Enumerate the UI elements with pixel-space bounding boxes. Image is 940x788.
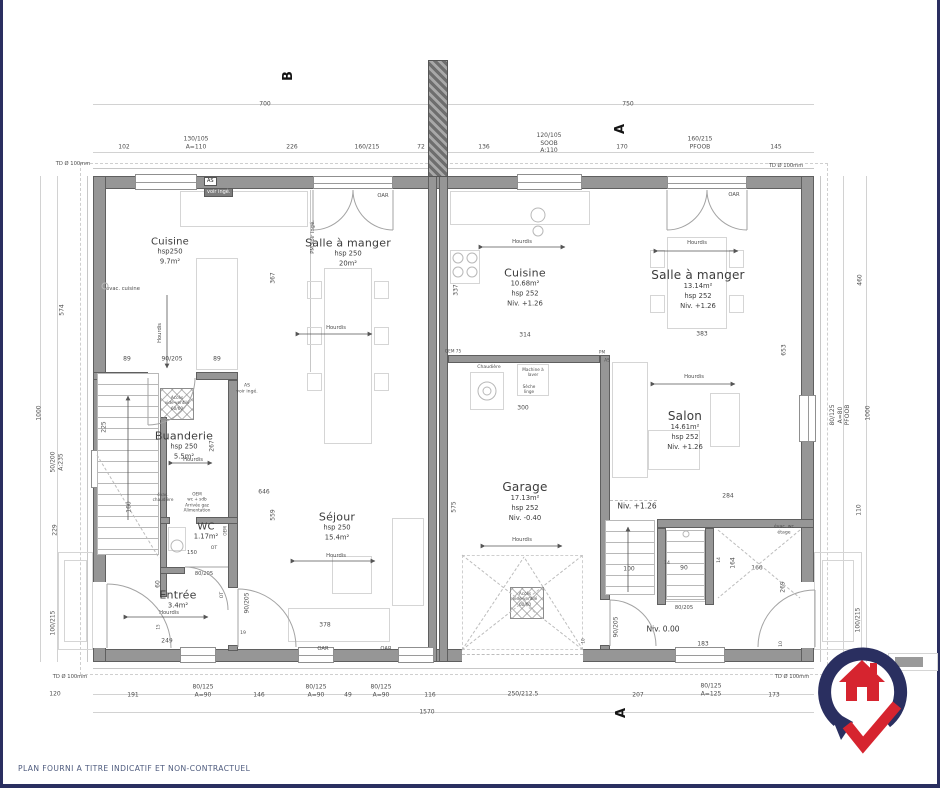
- dim-chain-line: [93, 152, 814, 153]
- dim-label: 750: [622, 100, 633, 108]
- chair: [307, 327, 322, 345]
- house-door-icon: [857, 687, 867, 701]
- room-detail: hsp 252: [667, 433, 703, 443]
- wall-wc-bottom: [160, 567, 185, 574]
- dim-label: 225: [100, 421, 108, 432]
- dim-label: 60: [154, 580, 162, 588]
- appliance-label: Sèche linge: [523, 384, 536, 395]
- dim-label: 80/205: [195, 571, 213, 578]
- room-label-entree: Entrée 3.4m²: [159, 589, 196, 612]
- dim-label: 10: [580, 638, 585, 643]
- dim-label: 100: [623, 565, 634, 573]
- dim-label: 173: [768, 691, 779, 699]
- room-detail: hsp 250: [305, 250, 391, 260]
- access-note: Accès vide-ventilé 60/60: [513, 591, 538, 607]
- dim-label: 183: [697, 640, 708, 648]
- dim-label: 559: [269, 509, 277, 520]
- dim-label: 269: [779, 581, 787, 592]
- dim-label: 10: [779, 641, 785, 647]
- checkmark-icon: [847, 705, 897, 745]
- hourdis-label: Hourdis: [157, 323, 164, 343]
- window: [799, 395, 816, 442]
- dim-label: 136: [478, 143, 489, 151]
- page-border-left: [0, 0, 3, 788]
- hourdis-label: Hourdis: [512, 239, 532, 246]
- pm-note: PM: [599, 349, 605, 354]
- dim-label: 575: [450, 501, 458, 512]
- hourdis-label: Hourdis: [512, 537, 532, 544]
- as-note: AS: [604, 357, 610, 362]
- evac-note: évac. cuisine: [106, 286, 140, 293]
- dim-label: 130/105 A=110: [184, 136, 209, 151]
- porch-right-inner: [822, 560, 854, 642]
- hourdis-label: Hourdis: [326, 325, 346, 332]
- dim-label: 653: [780, 344, 788, 355]
- level-label: Niv. 0.00: [646, 624, 679, 633]
- dim-label: 160/215 PFOOB: [688, 136, 713, 151]
- room-label-cuisine-right: Cuisine 10.68m² hsp 252 Niv. +1.26: [504, 267, 546, 310]
- room-detail: 13.14m²: [651, 282, 744, 292]
- dim-label: 226: [286, 143, 297, 151]
- room-label-cuisine-left: Cuisine hsp250 9.7m²: [151, 237, 189, 268]
- room-detail: 9.7m²: [151, 258, 189, 268]
- dim-chain-line: [93, 104, 814, 105]
- staircase-left: [97, 373, 159, 555]
- sofa: [392, 518, 424, 606]
- dim-label: 14: [717, 557, 723, 563]
- room-detail: Niv. +1.26: [504, 299, 546, 309]
- dim-label: 145: [770, 143, 781, 151]
- room-name: Salon: [667, 409, 703, 423]
- dim-label: 1000: [35, 405, 43, 420]
- dim-chain-line: [93, 712, 814, 713]
- hourdis-label: Hourdis: [684, 374, 704, 381]
- dim-label: 383: [696, 330, 707, 338]
- dim-label: 116: [424, 691, 435, 699]
- dim-label: 19: [240, 631, 246, 637]
- dim-label: 249: [161, 637, 172, 645]
- dim-label: 170: [616, 143, 627, 151]
- sofa: [612, 362, 648, 478]
- dim-label: 1570: [419, 708, 434, 716]
- party-wall-right: [439, 176, 448, 662]
- room-detail: hsp 252: [502, 504, 547, 514]
- kitchen-island: [196, 258, 238, 370]
- room-label-salle-right: Salle à manger 13.14m² hsp 252 Niv. +1.2…: [651, 268, 744, 312]
- window: [398, 647, 434, 663]
- exterior-element-fill: [895, 657, 923, 667]
- room-detail: hsp 250: [155, 443, 213, 453]
- door-opening: [93, 582, 106, 648]
- wall-buanderie-right: [228, 380, 238, 588]
- floor-plan-page: AS voir ingé. 700 750 B A A 102 130/105 …: [0, 0, 940, 788]
- house-body-icon: [846, 679, 879, 701]
- td-label: TD Ø 100mm: [775, 674, 810, 681]
- coffee-table: [332, 556, 372, 594]
- room-label-sejour: Séjour hsp 250 15.4m²: [319, 511, 355, 544]
- room-name: Cuisine: [504, 267, 546, 280]
- room-detail: hsp 250: [319, 524, 355, 534]
- appliance-label: Chaudière: [477, 365, 500, 371]
- room-name: Buanderie: [155, 430, 213, 443]
- as-note-detail: voir ingé.: [204, 188, 233, 197]
- evac-note: évac. chaudière: [153, 492, 174, 503]
- dim-label: 100/215: [49, 611, 57, 636]
- dim-label: 89: [123, 355, 131, 363]
- room-name: Cuisine: [151, 237, 189, 248]
- dim-label: 80/125 A=90: [370, 684, 391, 699]
- room-label-buanderie: Buanderie hsp 250 5.5m²: [155, 430, 213, 463]
- chair: [307, 373, 322, 391]
- hourdis-label: Hourdis: [687, 240, 707, 247]
- section-marker-a: A: [614, 708, 630, 718]
- dim-label: 378: [319, 621, 330, 629]
- garage-door-opening: [462, 649, 583, 662]
- dim-label: 250/212.5: [508, 690, 539, 698]
- dim-label: 229: [51, 524, 59, 535]
- section-marker-a: A: [613, 124, 629, 134]
- wall-stub: [228, 645, 238, 651]
- oar-label: OAR: [728, 192, 739, 199]
- room-label-salon: Salon 14.61m² hsp 252 Niv. +1.26: [667, 409, 703, 453]
- room-detail: Niv. -0.40: [502, 514, 547, 524]
- window: [135, 174, 197, 190]
- dim-label: 164: [729, 557, 737, 568]
- td-label: TD Ø 100mm: [53, 674, 88, 681]
- dim-label: 80/125 A=90: [305, 684, 326, 699]
- ot-label: OT: [211, 546, 217, 552]
- room-name: Salle à manger: [651, 268, 744, 282]
- evac-note: évac. wc étage: [774, 524, 794, 535]
- dim-label: 646: [258, 488, 269, 496]
- as-note: AS voir ingé.: [236, 383, 258, 394]
- garage-door-line: [462, 654, 583, 655]
- oar-label: OAR: [377, 193, 388, 200]
- staircase-right: [605, 520, 655, 595]
- dim-label: 89: [213, 355, 221, 363]
- room-detail: 15.4m²: [319, 534, 355, 544]
- oem-note: OEM wc + sdb Arrivée gaz Alimentation: [184, 492, 211, 513]
- room-detail: 1.17m²: [194, 533, 218, 543]
- room-label-salle-left: Salle à manger hsp 250 20m²: [305, 237, 391, 270]
- door-opening: [801, 582, 814, 648]
- dim-label: 191: [127, 691, 138, 699]
- dim-label: 284: [722, 492, 733, 500]
- french-door-opening: [667, 176, 747, 189]
- dim-label: 146: [253, 691, 264, 699]
- room-name: WC: [194, 522, 218, 533]
- dim-label: 367: [269, 272, 277, 283]
- cladding-line: [93, 668, 814, 669]
- window: [180, 647, 216, 663]
- chair: [374, 281, 389, 299]
- pin-tip: [828, 708, 853, 740]
- dim-label: 150: [187, 550, 197, 557]
- french-door-opening: [313, 176, 393, 189]
- room-detail: Niv. +1.26: [667, 443, 703, 453]
- dim-label: 90/205: [243, 592, 251, 613]
- oem-note: OEM: [222, 526, 227, 536]
- room-detail: Niv. +1.26: [651, 302, 744, 312]
- house-roof-icon: [839, 660, 885, 682]
- wall-wc-top: [160, 517, 170, 524]
- chair: [729, 250, 744, 268]
- room-detail: 17.13m²: [502, 494, 547, 504]
- toilet: [168, 527, 186, 551]
- room-label-garage: Garage 17.13m² hsp 252 Niv. -0.40: [502, 480, 547, 524]
- dim-label: 337: [452, 284, 460, 295]
- dim-label: 110: [855, 504, 863, 515]
- ot-label: OT: [220, 592, 226, 598]
- kitchen-counter: [450, 191, 590, 225]
- cladding-line: [93, 168, 814, 169]
- dim-label: 300: [517, 404, 528, 412]
- dim-label: 160/215: [355, 143, 380, 151]
- room-detail: 14.61m²: [667, 423, 703, 433]
- appliance-label: Machine à laver: [522, 367, 543, 378]
- oar-label: OAR: [380, 646, 391, 653]
- dim-label: 90: [680, 564, 688, 572]
- room-label-wc: WC 1.17m²: [194, 522, 218, 543]
- dim-label: 80/125 A=90: [192, 684, 213, 699]
- td-label: TD Ø 100mm: [56, 161, 91, 168]
- room-name: Salle à manger: [305, 237, 391, 250]
- dim-label: 102: [118, 143, 129, 151]
- room-detail: hsp 252: [651, 292, 744, 302]
- cooktop: [450, 250, 480, 284]
- dim-label: 160: [125, 501, 133, 512]
- wall-buanderie-top: [196, 372, 238, 380]
- house-chimney-icon: [870, 663, 877, 674]
- dim-label: 80/205: [675, 605, 693, 612]
- as-note: AS: [204, 177, 217, 186]
- dim-label: 207: [632, 691, 643, 699]
- dim-label: 80/125 A=125: [700, 683, 721, 698]
- td-label: TD Ø 100mm: [769, 163, 804, 170]
- chair: [307, 281, 322, 299]
- dim-label: 574: [58, 304, 66, 315]
- chair: [374, 327, 389, 345]
- hourdis-label: Hourdis: [326, 553, 346, 560]
- window: [298, 647, 334, 663]
- dim-label: 120/105 SOOB A:110: [537, 132, 562, 155]
- dim-label: 15: [155, 624, 160, 629]
- coffee-table: [710, 393, 740, 447]
- room-name: Garage: [502, 480, 547, 494]
- room-detail: 3.4m²: [159, 602, 196, 612]
- oem-note: OEM 75: [445, 348, 461, 353]
- dim-label: 460: [856, 274, 864, 285]
- room-detail: 5.5m²: [155, 453, 213, 463]
- dim-label: 90/205: [612, 616, 620, 637]
- access-note: Accès vide-ventilé 60/60: [165, 395, 190, 411]
- room-name: Entrée: [159, 589, 196, 602]
- dim-label: 49: [344, 691, 352, 699]
- dim-label: 166: [751, 564, 762, 572]
- window: [675, 647, 725, 663]
- level-label: Niv. +1.26: [617, 501, 656, 510]
- wall-stub: [600, 645, 610, 650]
- boiler: [470, 372, 504, 410]
- dim-label: 120: [49, 690, 60, 698]
- disclaimer-text: PLAN FOURNI A TITRE INDICATIF ET NON-CON…: [18, 764, 250, 773]
- chair: [650, 250, 665, 268]
- dim-label: 72: [417, 143, 425, 151]
- room-detail: hsp 252: [504, 290, 546, 300]
- dim-label: 1000: [864, 405, 872, 420]
- dim-label: 90/205: [161, 355, 182, 363]
- wall-cuisine-right-bottom: [448, 355, 600, 363]
- dim-label: 50/200 A:235: [50, 451, 65, 472]
- room-name: Séjour: [319, 511, 355, 524]
- wall-stairbox-right: [705, 528, 714, 605]
- room-detail: 10.68m²: [504, 280, 546, 290]
- sofa: [288, 608, 390, 642]
- chair: [374, 373, 389, 391]
- kitchen-counter: [180, 191, 308, 227]
- dining-table: [324, 268, 372, 444]
- room-detail: hsp250: [151, 248, 189, 258]
- room-detail: 20m²: [305, 260, 391, 270]
- oar-label: OAR: [317, 646, 328, 653]
- stairbox-door-line: [666, 601, 705, 602]
- dim-label: 100/215: [854, 608, 862, 633]
- party-wall-left: [428, 176, 437, 662]
- section-marker-b: B: [281, 71, 297, 81]
- page-border-bottom: [0, 784, 940, 788]
- dim-label: 700: [259, 100, 270, 108]
- dim-label: 14: [664, 561, 670, 567]
- dim-label: 314: [519, 331, 530, 339]
- porch-left-inner: [64, 560, 87, 642]
- window: [517, 174, 582, 190]
- dim-label: 80/125 A=80 PFOOB: [829, 404, 852, 425]
- party-wall-stub: [428, 60, 448, 177]
